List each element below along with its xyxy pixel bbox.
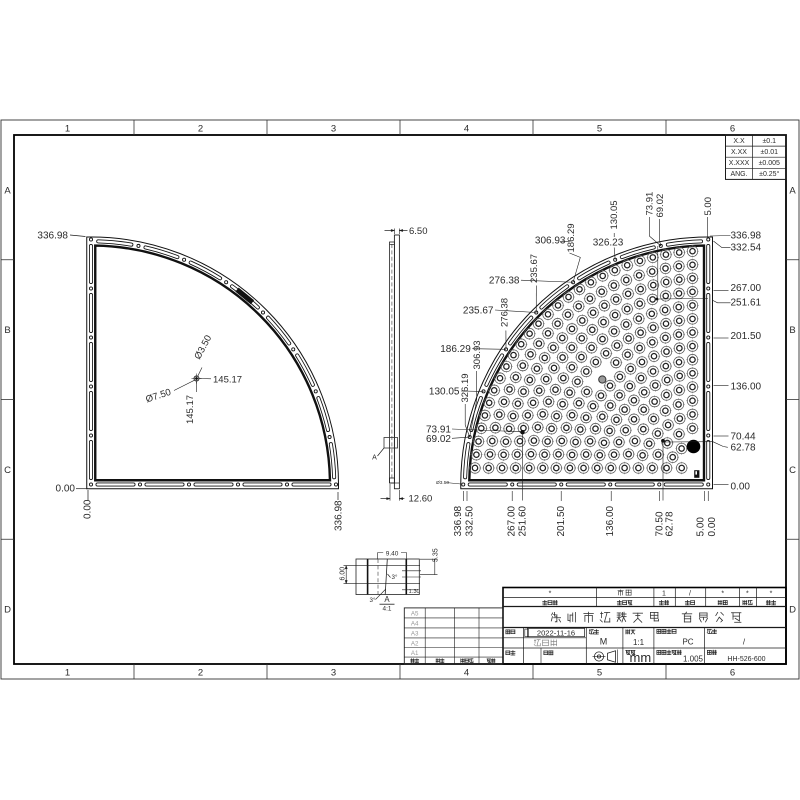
svg-text:130.05: 130.05 bbox=[429, 386, 460, 397]
svg-text:mm: mm bbox=[630, 650, 652, 665]
svg-text:B: B bbox=[4, 325, 10, 336]
svg-text:*: * bbox=[721, 590, 724, 597]
svg-text:5: 5 bbox=[597, 124, 602, 135]
svg-text:3°: 3° bbox=[370, 597, 376, 604]
svg-text:12.60: 12.60 bbox=[409, 494, 433, 505]
svg-text:2022-11-16: 2022-11-16 bbox=[537, 628, 575, 637]
svg-text:201.50: 201.50 bbox=[731, 331, 762, 342]
svg-text:1: 1 bbox=[65, 124, 70, 135]
svg-text:A: A bbox=[384, 595, 390, 604]
svg-text:1: 1 bbox=[65, 668, 70, 679]
svg-text:3°: 3° bbox=[392, 574, 398, 581]
svg-text:186.29: 186.29 bbox=[566, 223, 577, 252]
svg-text:69.02: 69.02 bbox=[655, 194, 666, 218]
svg-text:*: * bbox=[770, 590, 773, 597]
svg-text:69.02: 69.02 bbox=[426, 434, 451, 445]
svg-text:*: * bbox=[746, 590, 749, 597]
svg-text:332.54: 332.54 bbox=[731, 242, 762, 253]
svg-text:D: D bbox=[789, 605, 796, 616]
svg-text:6.50: 6.50 bbox=[409, 226, 428, 237]
svg-text:326.23: 326.23 bbox=[593, 237, 624, 248]
svg-text:332.50: 332.50 bbox=[465, 505, 476, 536]
svg-text:336.98: 336.98 bbox=[731, 230, 762, 241]
svg-text:HH-526-600: HH-526-600 bbox=[727, 656, 765, 663]
svg-text:73.91: 73.91 bbox=[645, 192, 656, 216]
svg-text:±0.01: ±0.01 bbox=[761, 149, 779, 156]
svg-text:B: B bbox=[789, 325, 795, 336]
svg-text:1:1: 1:1 bbox=[633, 638, 645, 647]
svg-text:186.29: 186.29 bbox=[440, 344, 471, 355]
svg-text:1: 1 bbox=[662, 590, 666, 597]
svg-text:ANG.: ANG. bbox=[730, 171, 747, 178]
svg-text:130.05: 130.05 bbox=[609, 200, 620, 229]
svg-text:A: A bbox=[4, 185, 11, 196]
svg-text:5.35: 5.35 bbox=[433, 548, 440, 562]
svg-text:±0.25°: ±0.25° bbox=[759, 170, 779, 178]
svg-text:M: M bbox=[600, 637, 608, 647]
svg-text:X.XX: X.XX bbox=[731, 149, 747, 156]
svg-text:1.30: 1.30 bbox=[409, 589, 420, 595]
svg-text:136.00: 136.00 bbox=[605, 505, 616, 536]
svg-text:/: / bbox=[689, 590, 691, 597]
svg-text:251.61: 251.61 bbox=[731, 298, 762, 309]
svg-text:A4: A4 bbox=[411, 620, 419, 627]
svg-text:326.19: 326.19 bbox=[460, 373, 471, 402]
svg-text:2: 2 bbox=[198, 668, 203, 679]
svg-text:C: C bbox=[4, 465, 11, 476]
svg-text:X.XXX: X.XXX bbox=[729, 160, 750, 167]
svg-text:235.67: 235.67 bbox=[529, 254, 540, 283]
svg-text:3: 3 bbox=[331, 124, 336, 135]
svg-text:Ø3.50: Ø3.50 bbox=[436, 480, 449, 486]
svg-text:±0.1: ±0.1 bbox=[762, 138, 776, 145]
svg-text:C: C bbox=[789, 465, 796, 476]
svg-text:4:1: 4:1 bbox=[383, 606, 392, 613]
svg-text:A: A bbox=[789, 185, 796, 196]
svg-text:136.00: 136.00 bbox=[731, 381, 762, 392]
svg-text:0.00: 0.00 bbox=[731, 481, 751, 492]
svg-text:145.17: 145.17 bbox=[185, 395, 196, 424]
svg-text:201.50: 201.50 bbox=[556, 505, 567, 536]
svg-text:62.78: 62.78 bbox=[665, 511, 676, 536]
svg-text:3: 3 bbox=[331, 668, 336, 679]
svg-text:6: 6 bbox=[730, 124, 735, 135]
svg-text:A3: A3 bbox=[411, 630, 419, 637]
svg-text:1.005: 1.005 bbox=[683, 654, 704, 663]
svg-text:±0.005: ±0.005 bbox=[759, 160, 780, 167]
svg-text:267.00: 267.00 bbox=[731, 283, 762, 294]
svg-text:306.93: 306.93 bbox=[472, 340, 483, 369]
svg-text:D: D bbox=[4, 605, 11, 616]
svg-text:PC: PC bbox=[682, 638, 693, 647]
svg-text:336.98: 336.98 bbox=[334, 500, 345, 531]
svg-text:6.00: 6.00 bbox=[340, 567, 347, 581]
svg-text:A1: A1 bbox=[411, 650, 419, 657]
svg-text:276.38: 276.38 bbox=[500, 298, 511, 327]
svg-text:306.93: 306.93 bbox=[535, 236, 566, 247]
svg-text:A: A bbox=[372, 455, 377, 462]
svg-text:X.X: X.X bbox=[733, 138, 745, 145]
svg-text:A2: A2 bbox=[411, 640, 419, 647]
svg-text:251.60: 251.60 bbox=[518, 505, 529, 536]
svg-text:5: 5 bbox=[597, 668, 602, 679]
svg-text:4: 4 bbox=[464, 668, 469, 679]
svg-text:62.78: 62.78 bbox=[731, 443, 756, 454]
svg-text:2: 2 bbox=[198, 124, 203, 135]
svg-text:336.98: 336.98 bbox=[453, 505, 464, 536]
svg-text:235.67: 235.67 bbox=[463, 305, 494, 316]
svg-text:6: 6 bbox=[730, 668, 735, 679]
svg-text:9.40: 9.40 bbox=[386, 550, 399, 557]
svg-text:145.17: 145.17 bbox=[213, 374, 242, 385]
svg-text:5.00: 5.00 bbox=[703, 197, 714, 216]
svg-text:267.00: 267.00 bbox=[507, 505, 518, 536]
svg-text:*: * bbox=[549, 590, 552, 597]
svg-text:70.44: 70.44 bbox=[731, 432, 756, 443]
svg-text:0.00: 0.00 bbox=[83, 499, 94, 519]
svg-text:0.00: 0.00 bbox=[707, 517, 718, 537]
svg-text:A5: A5 bbox=[411, 610, 419, 617]
svg-text:336.98: 336.98 bbox=[37, 230, 68, 241]
svg-text:5.00: 5.00 bbox=[696, 517, 707, 537]
svg-text:4: 4 bbox=[464, 124, 469, 135]
svg-text:0.00: 0.00 bbox=[56, 484, 76, 495]
svg-text:276.38: 276.38 bbox=[489, 276, 520, 287]
